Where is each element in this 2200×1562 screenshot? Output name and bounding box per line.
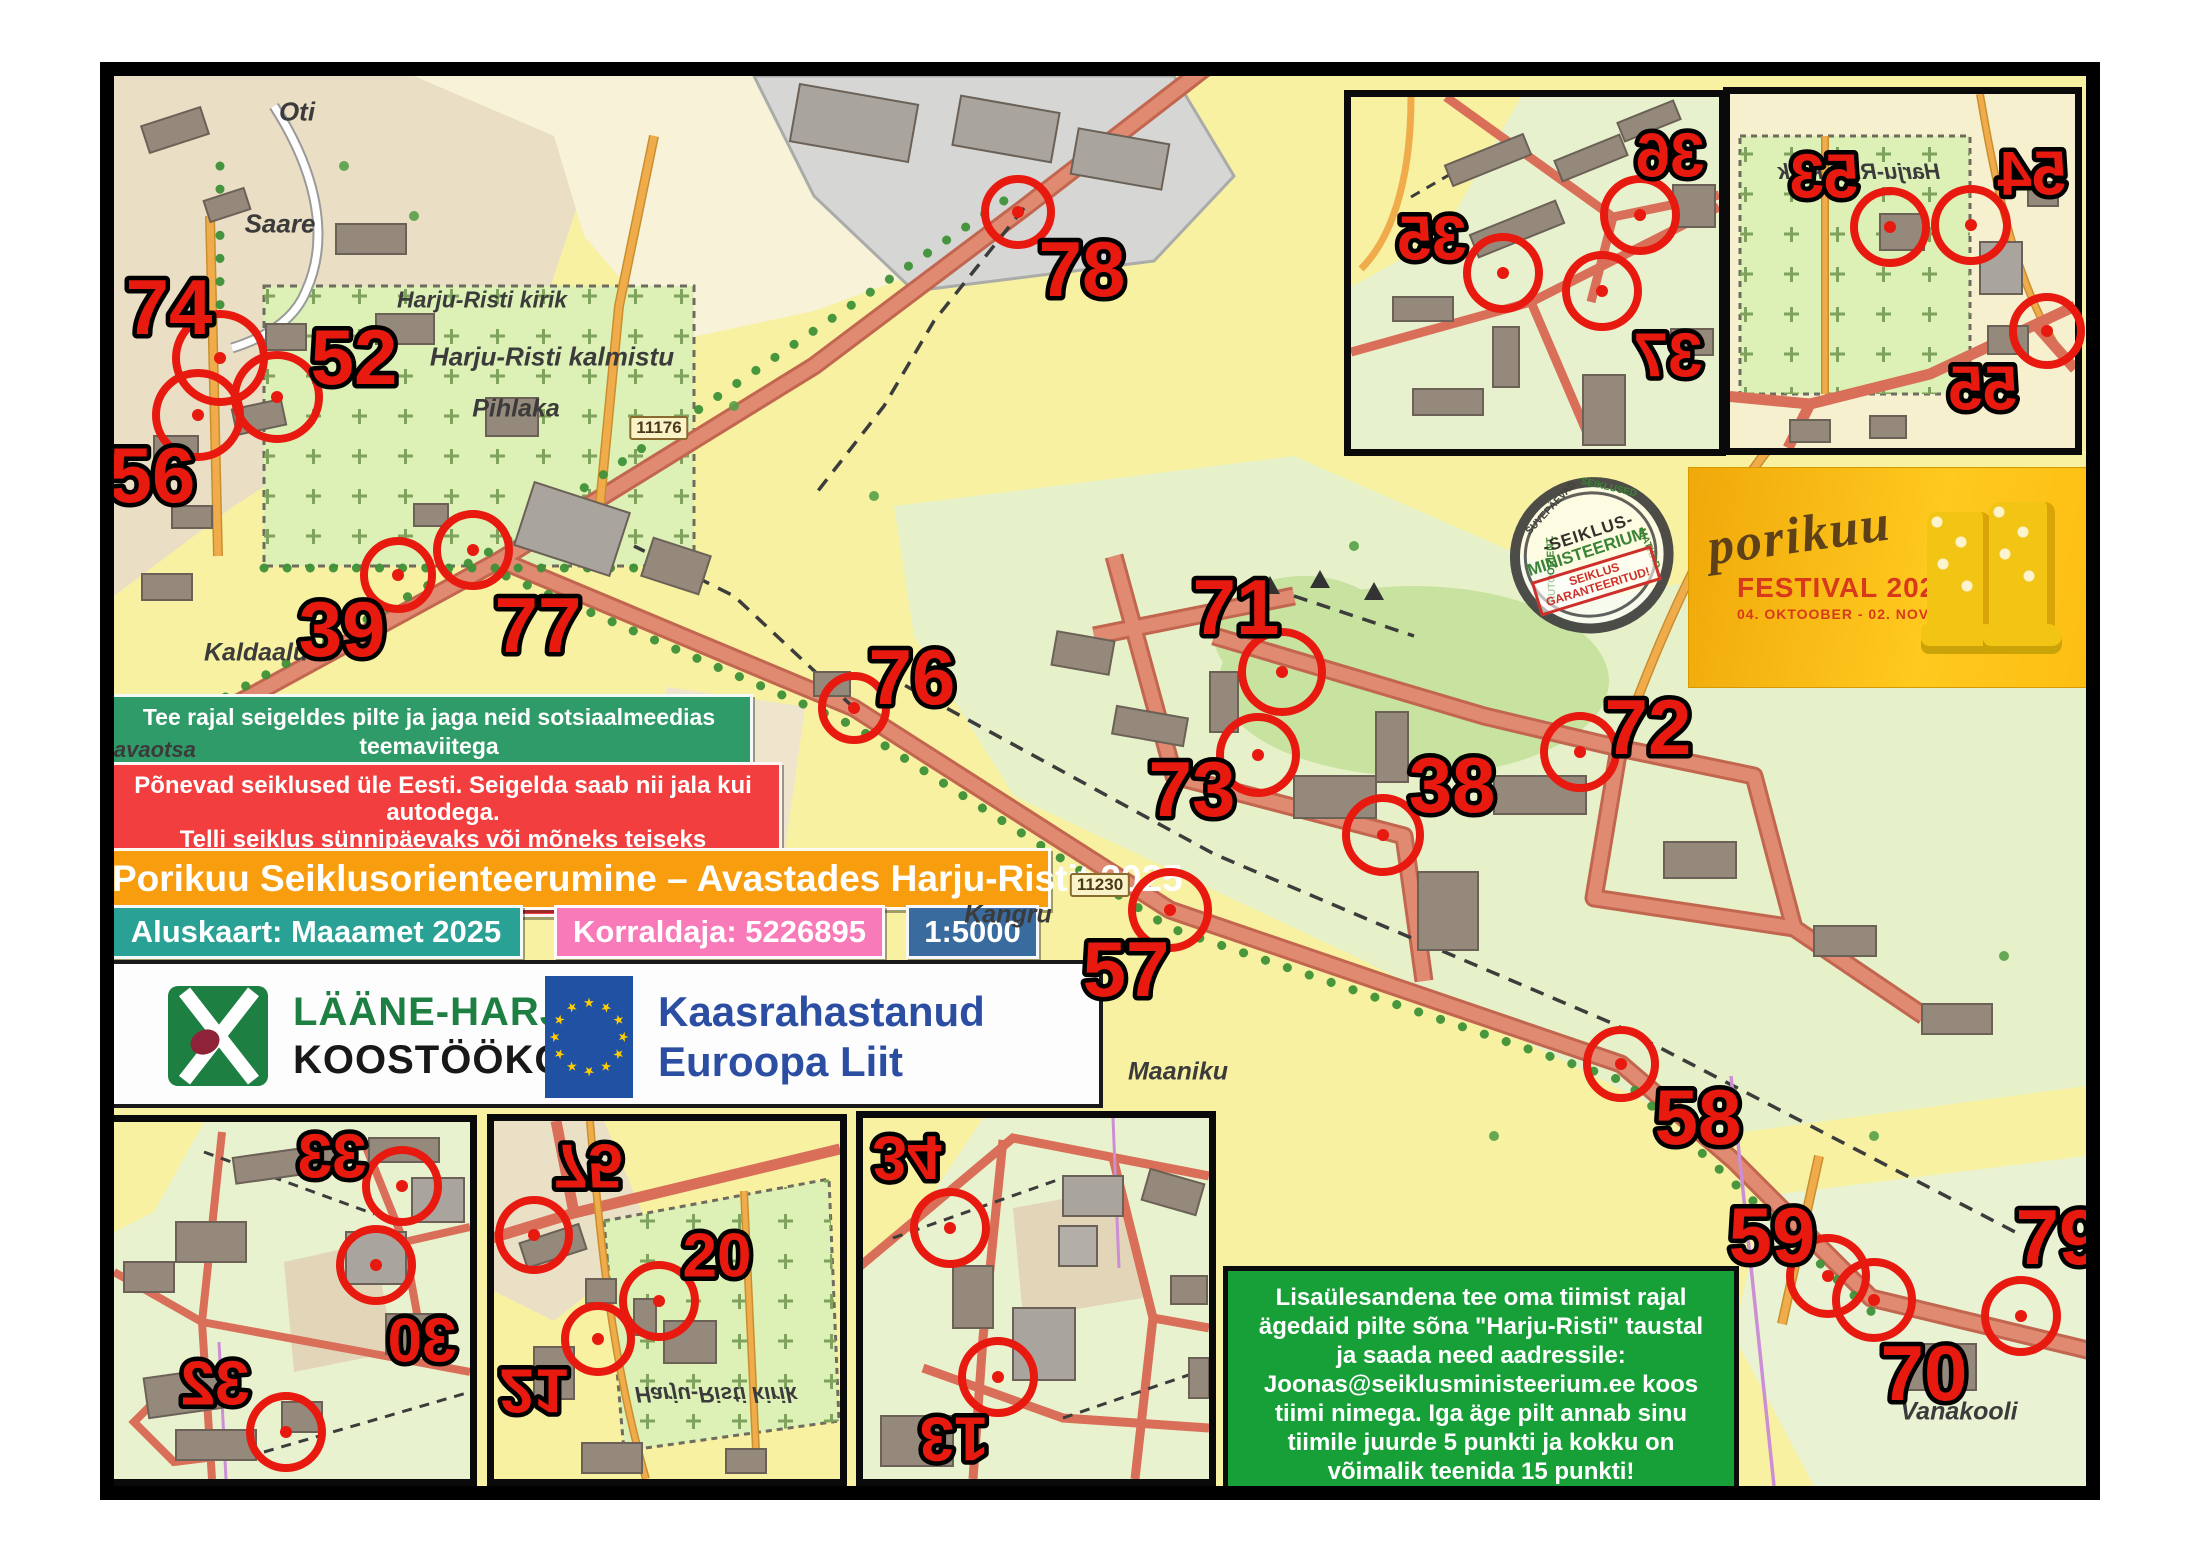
map-labels-layer: OtiSaareHarju-Risti kirikHarju-Risti kal…: [114, 76, 2086, 1486]
map-place-label: änavaotsa: [100, 737, 196, 763]
map-place-label: Kaldaaluse: [204, 639, 336, 668]
road-number-shield: 11230: [1070, 873, 1130, 897]
map-place-label: Harju-Risti kirik: [635, 1381, 798, 1407]
map-place-label: Harju-Risti kirik: [397, 287, 567, 314]
map-place-label: Saare: [245, 209, 316, 240]
map-place-label: Oti: [279, 97, 315, 128]
map-place-label: Harju-Risti kalmistu: [430, 342, 674, 373]
map-frame: OtiSaareHarju-Risti kirikHarju-Risti kal…: [100, 62, 2100, 1500]
map-place-label: Maaniku: [1128, 1058, 1228, 1087]
page: { "colors": { "control_red": "#E8190F", …: [0, 0, 2200, 1562]
map-place-label: Kangru: [964, 901, 1052, 930]
map-place-label: Harju-Risti kirik: [1778, 159, 1941, 185]
road-number-shield: 11176: [629, 416, 688, 440]
map-place-label: Vanakooli: [1900, 1398, 2017, 1427]
map-place-label: Pihlaka: [472, 395, 560, 424]
